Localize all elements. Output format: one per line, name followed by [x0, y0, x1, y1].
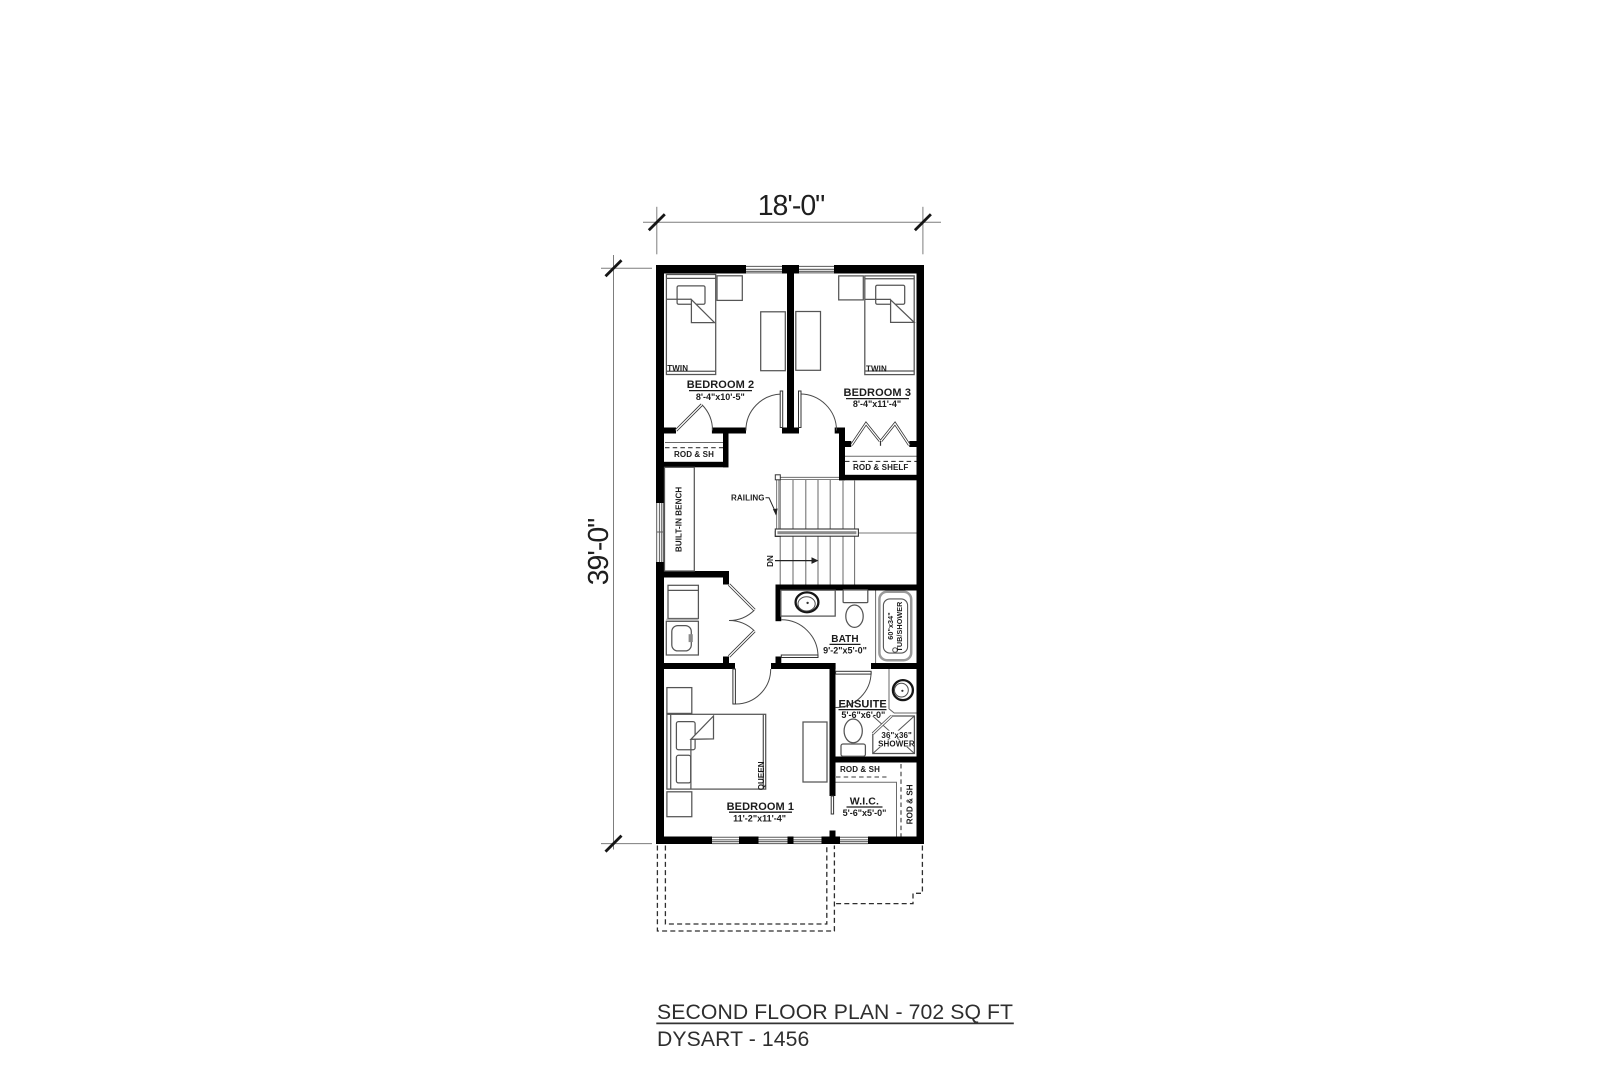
svg-text:DN: DN	[766, 555, 775, 567]
svg-text:ROD & SH: ROD & SH	[674, 450, 714, 459]
svg-text:RAILING: RAILING	[731, 494, 765, 503]
svg-text:ROD & SH: ROD & SH	[840, 765, 880, 774]
svg-text:8'-4"x10'-5": 8'-4"x10'-5"	[696, 392, 745, 402]
svg-text:BATH: BATH	[831, 634, 858, 645]
svg-text:BEDROOM 2: BEDROOM 2	[687, 379, 755, 391]
svg-text:5'-6"x6'-0": 5'-6"x6'-0"	[841, 710, 885, 720]
svg-text:11'-2"x11'-4": 11'-2"x11'-4"	[733, 813, 786, 823]
svg-text:SECOND FLOOR PLAN - 702 SQ FT: SECOND FLOOR PLAN - 702 SQ FT	[657, 1001, 1013, 1024]
svg-text:BEDROOM 1: BEDROOM 1	[727, 801, 795, 813]
svg-text:BUILT-IN BENCH: BUILT-IN BENCH	[675, 487, 684, 552]
svg-text:QUEEN: QUEEN	[757, 761, 766, 790]
svg-text:5'-6"x5'-0": 5'-6"x5'-0"	[843, 808, 887, 818]
svg-text:18'-0": 18'-0"	[758, 190, 825, 222]
svg-text:TWIN: TWIN	[866, 364, 887, 373]
svg-text:SHOWER: SHOWER	[878, 739, 915, 748]
svg-text:9'-2"x5'-0": 9'-2"x5'-0"	[823, 645, 867, 655]
svg-text:8'-4"x11'-4": 8'-4"x11'-4"	[853, 399, 901, 409]
svg-text:60"x34": 60"x34"	[886, 612, 895, 640]
svg-text:BEDROOM 3: BEDROOM 3	[844, 387, 912, 399]
svg-text:ROD & SH: ROD & SH	[906, 784, 915, 824]
svg-text:ROD & SHELF: ROD & SHELF	[853, 463, 908, 472]
svg-text:DYSART - 1456: DYSART - 1456	[657, 1028, 809, 1051]
svg-text:W.I.C.: W.I.C.	[850, 796, 879, 808]
svg-text:TUB/SHOWER: TUB/SHOWER	[895, 601, 904, 652]
svg-text:39'-0": 39'-0"	[583, 519, 615, 586]
svg-text:TWIN: TWIN	[667, 364, 688, 373]
svg-text:ENSUITE: ENSUITE	[839, 698, 887, 710]
